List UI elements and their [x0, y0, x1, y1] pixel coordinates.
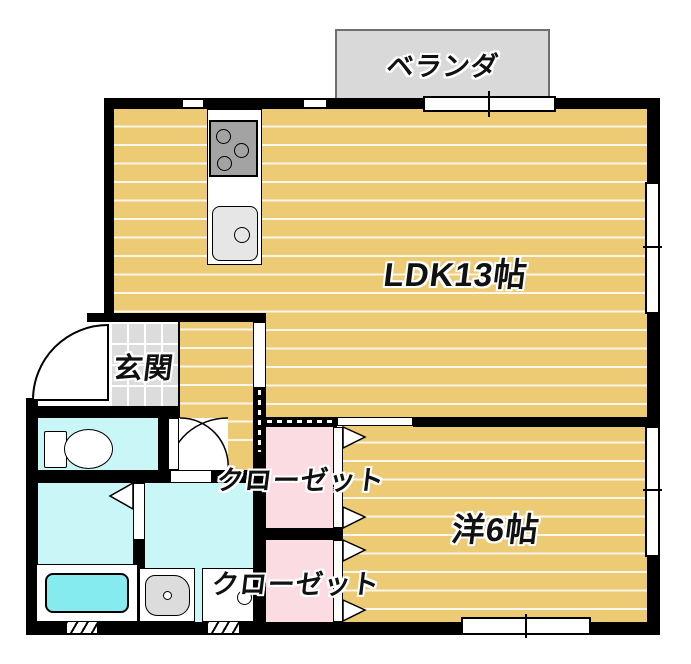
ldk-south-wall-solid [413, 417, 648, 427]
bath-folding-door-strip [133, 483, 145, 540]
washbasin-icon [139, 568, 195, 622]
veranda-window-tick [488, 91, 490, 117]
closet-upper-door-triangle-top-icon [343, 427, 366, 448]
kitchen-sink-icon [212, 206, 258, 261]
genkan-bottom-wall [26, 406, 180, 418]
ldk-south-wall-dashed [266, 417, 337, 427]
closet-lower-door-triangle-bottom-icon [343, 600, 366, 621]
entry-door-swing-icon [33, 325, 108, 400]
left-wall-upper [104, 98, 114, 313]
bath-folding-door-triangle-icon [110, 483, 133, 509]
top-vent-window-1 [182, 99, 204, 108]
western-right-window [645, 426, 660, 557]
ldk-label: LDK13帖 [381, 248, 530, 296]
veranda-label: ベランダ [385, 45, 502, 84]
closet-upper-label: クローゼット [215, 459, 388, 498]
top-vent-window-2 [303, 99, 327, 108]
bathtub-icon [36, 564, 138, 622]
toilet-icon [44, 429, 114, 470]
closet-upper-door-triangle-bottom-icon [343, 507, 366, 528]
closet-lower-label: クローゼット [210, 563, 383, 602]
floor-plan: ベランダ LDK13帖 玄関 洋6帖 クローゼット クローゼット [0, 0, 691, 664]
hall-ldk-door [253, 322, 266, 388]
western-room-label: 洋6帖 [449, 503, 542, 551]
ldk-right-window-tick [643, 246, 662, 248]
genkan-label: 玄関 [111, 345, 176, 387]
toilet-door-panel [168, 418, 179, 470]
washroom-top-wall-left [26, 470, 170, 483]
ldk-western-sliding-door [337, 417, 413, 426]
closet-lower-door-triangle-top-icon [343, 540, 366, 561]
genkan-top-wall [87, 313, 266, 322]
western-bottom-window-tick [525, 614, 527, 638]
ldk-right-window [645, 182, 660, 314]
washroom-door [170, 470, 212, 483]
western-right-window-tick [643, 489, 662, 491]
gas-stove-icon [209, 120, 258, 177]
hallway-floor [180, 322, 253, 418]
closet-divider-wall [253, 528, 343, 540]
